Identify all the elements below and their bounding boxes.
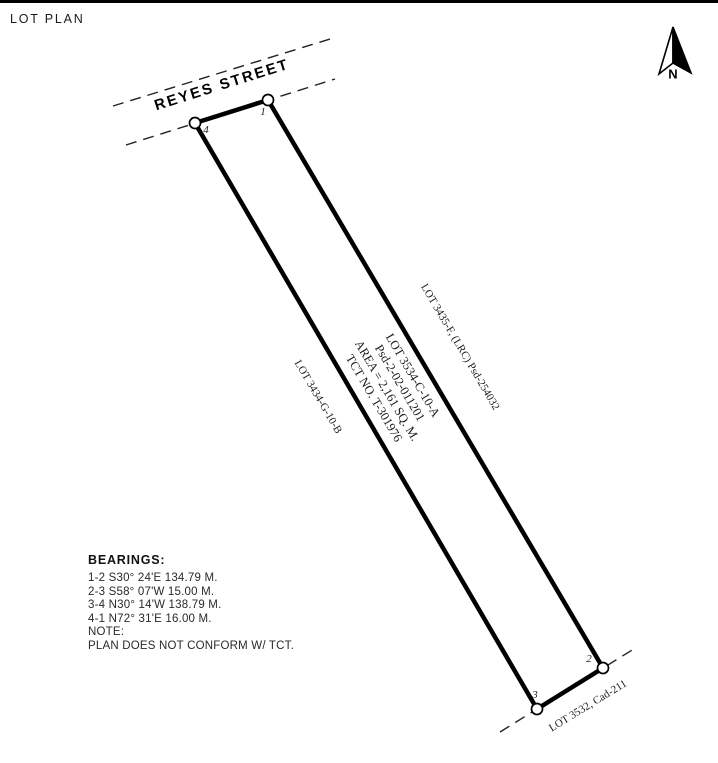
- north-arrow-label: N: [668, 67, 677, 82]
- corner-label-1: 1: [260, 106, 266, 118]
- lot-plan-sheet: LOT PLAN N REYES STREET 1 2 3 4 LOT 3534…: [0, 0, 718, 763]
- corner-marker-3: [532, 704, 543, 715]
- corner-label-3: 3: [532, 689, 538, 701]
- note-text: PLAN DOES NOT CONFORM W/ TCT.: [88, 640, 294, 654]
- bearing-line-3-4: 3-4 N30° 14'W 138.79 M.: [88, 599, 294, 613]
- bearings-heading: BEARINGS:: [88, 553, 294, 567]
- page-title: LOT PLAN: [10, 12, 85, 26]
- bearings-block: BEARINGS: 1-2 S30° 24'E 134.79 M. 2-3 S5…: [88, 553, 294, 654]
- corner-label-4: 4: [203, 124, 209, 136]
- corner-label-2: 2: [586, 653, 592, 665]
- note-heading: NOTE:: [88, 626, 294, 640]
- corner-marker-1: [263, 95, 274, 106]
- corner-marker-2: [598, 663, 609, 674]
- bearing-line-2-3: 2-3 S58° 07'W 15.00 M.: [88, 586, 294, 600]
- bearing-line-4-1: 4-1 N72° 31'E 16.00 M.: [88, 613, 294, 627]
- street-edge-line-upper: [113, 39, 330, 106]
- corner-marker-4: [190, 118, 201, 129]
- bearing-line-1-2: 1-2 S30° 24'E 134.79 M.: [88, 572, 294, 586]
